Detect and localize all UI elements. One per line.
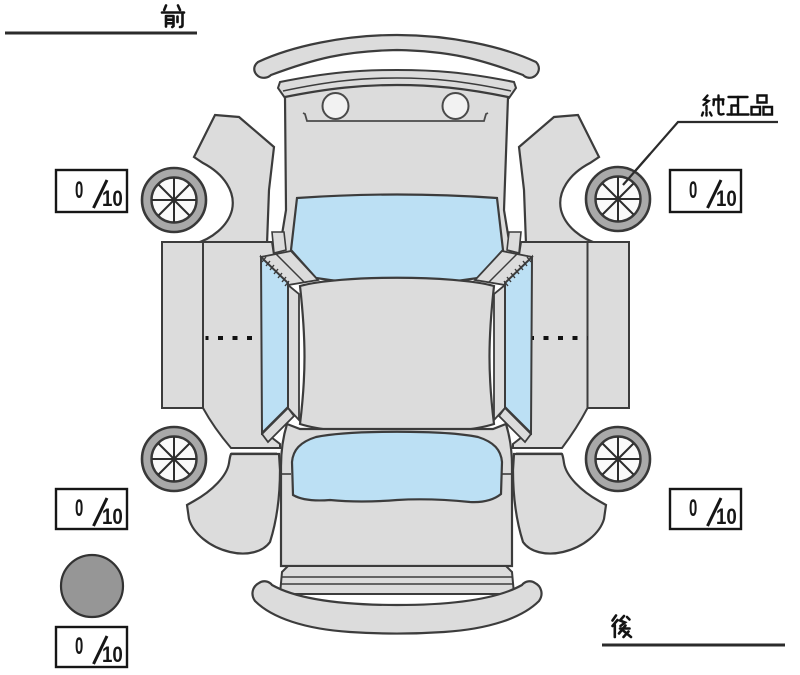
svg-text:10: 10 (716, 506, 737, 530)
svg-text:10: 10 (102, 188, 123, 212)
svg-text:0: 0 (75, 178, 83, 204)
svg-text:10: 10 (102, 506, 123, 530)
svg-text:0: 0 (75, 634, 83, 660)
svg-text:10: 10 (716, 188, 737, 212)
svg-text:0: 0 (689, 496, 697, 522)
svg-text:0: 0 (75, 496, 83, 522)
svg-text:10: 10 (102, 644, 123, 668)
svg-text:0: 0 (689, 178, 697, 204)
